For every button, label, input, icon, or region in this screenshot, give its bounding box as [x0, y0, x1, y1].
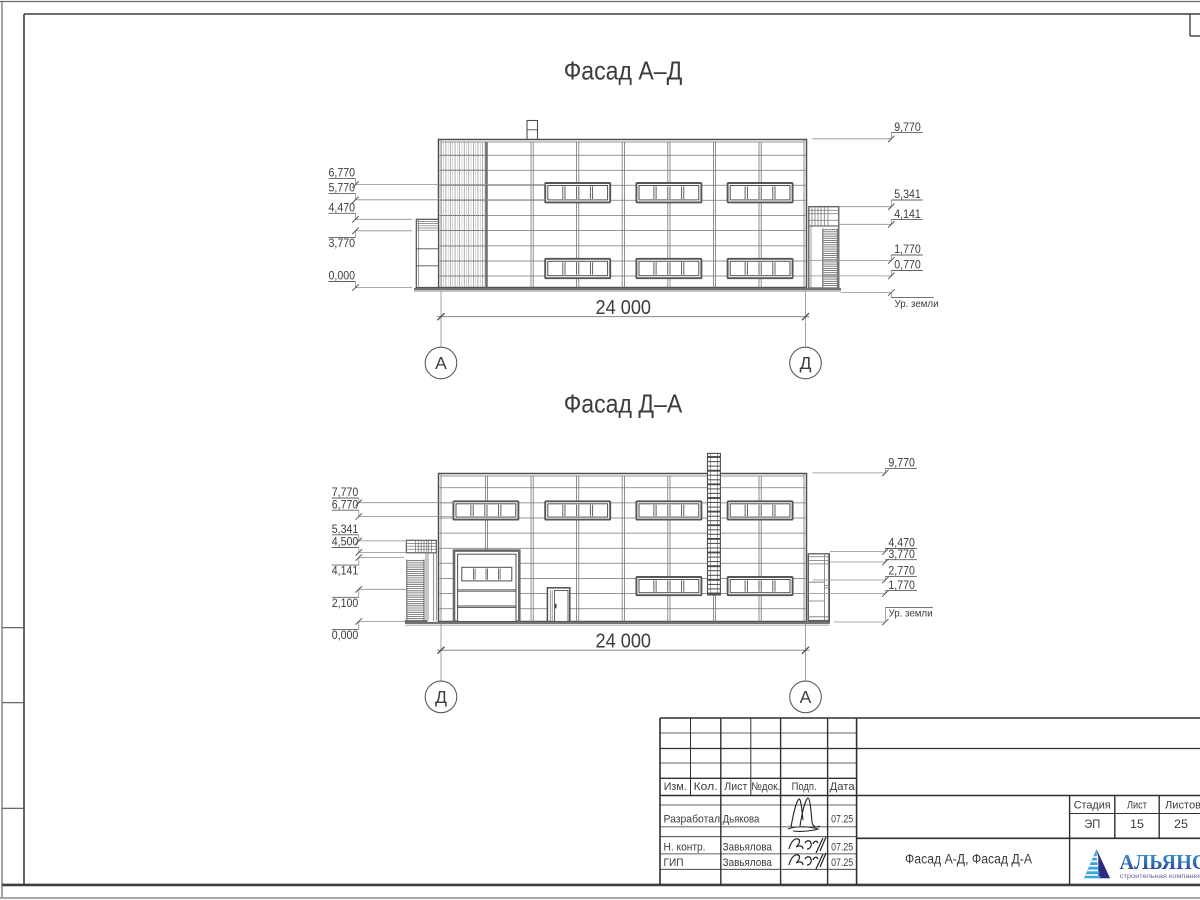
svg-text:2,100: 2,100	[332, 598, 359, 610]
svg-text:07.25: 07.25	[831, 857, 853, 869]
svg-text:Д: Д	[435, 687, 447, 707]
svg-text:Завьялова: Завьялова	[723, 857, 773, 869]
svg-text:Фасад А-Д, Фасад Д-А: Фасад А-Д, Фасад Д-А	[905, 852, 1032, 867]
svg-text:Д: Д	[800, 353, 812, 373]
svg-text:АЛЬЯНС: АЛЬЯНС	[1120, 850, 1200, 874]
svg-text:Стадия: Стадия	[1074, 800, 1111, 812]
svg-text:9,770: 9,770	[894, 122, 921, 134]
svg-text:4,500: 4,500	[332, 537, 359, 549]
svg-text:4,470: 4,470	[888, 538, 915, 550]
svg-text:А: А	[435, 353, 447, 373]
svg-text:Ур. земли: Ур. земли	[895, 298, 939, 310]
svg-text:А: А	[800, 687, 812, 707]
svg-text:24 000: 24 000	[596, 297, 652, 319]
svg-text:0,000: 0,000	[332, 630, 359, 642]
svg-text:строительная компания: строительная компания	[1120, 873, 1200, 880]
svg-text:ГИП: ГИП	[664, 857, 684, 869]
svg-text:6,770: 6,770	[332, 499, 359, 511]
svg-text:№док.: №док.	[751, 781, 780, 793]
svg-text:0,770: 0,770	[894, 260, 921, 272]
svg-text:Ур. земли: Ур. земли	[889, 608, 933, 620]
svg-text:15: 15	[1130, 819, 1144, 831]
svg-text:ЭП: ЭП	[1084, 819, 1100, 831]
svg-text:Н. контр.: Н. контр.	[664, 841, 706, 853]
svg-text:5,341: 5,341	[894, 189, 921, 201]
svg-text:07.25: 07.25	[831, 813, 853, 825]
svg-text:Дьякова: Дьякова	[723, 813, 760, 825]
svg-text:7,770: 7,770	[332, 487, 359, 499]
svg-text:3,770: 3,770	[888, 549, 915, 561]
svg-text:4,141: 4,141	[894, 209, 921, 221]
svg-text:Лист: Лист	[724, 781, 747, 793]
svg-text:Разработал: Разработал	[664, 813, 721, 825]
svg-text:4,470: 4,470	[329, 203, 356, 215]
svg-text:Фасад А–Д: Фасад А–Д	[564, 56, 683, 86]
svg-text:3,770: 3,770	[329, 238, 356, 250]
svg-text:5,770: 5,770	[329, 183, 356, 195]
svg-text:07.25: 07.25	[831, 841, 853, 853]
svg-text:9,770: 9,770	[888, 458, 915, 470]
svg-text:Фасад Д–А: Фасад Д–А	[564, 389, 683, 419]
svg-text:Изм.: Изм.	[664, 781, 687, 793]
svg-text:Листов: Листов	[1165, 800, 1200, 812]
svg-text:6,770: 6,770	[329, 168, 356, 180]
svg-text:Подп.: Подп.	[792, 781, 817, 793]
svg-text:25: 25	[1174, 819, 1188, 831]
svg-text:24 000: 24 000	[596, 631, 652, 653]
svg-text:Кол.: Кол.	[694, 781, 718, 793]
svg-text:Дата: Дата	[830, 781, 856, 793]
svg-text:1,770: 1,770	[894, 244, 921, 256]
svg-text:0,000: 0,000	[329, 271, 356, 283]
svg-text:2,770: 2,770	[888, 566, 915, 578]
svg-text:4,141: 4,141	[332, 566, 359, 578]
svg-text:Лист: Лист	[1127, 800, 1147, 812]
svg-text:5,341: 5,341	[332, 524, 359, 536]
svg-text:Завьялова: Завьялова	[723, 841, 773, 853]
svg-text:1,770: 1,770	[888, 580, 915, 592]
